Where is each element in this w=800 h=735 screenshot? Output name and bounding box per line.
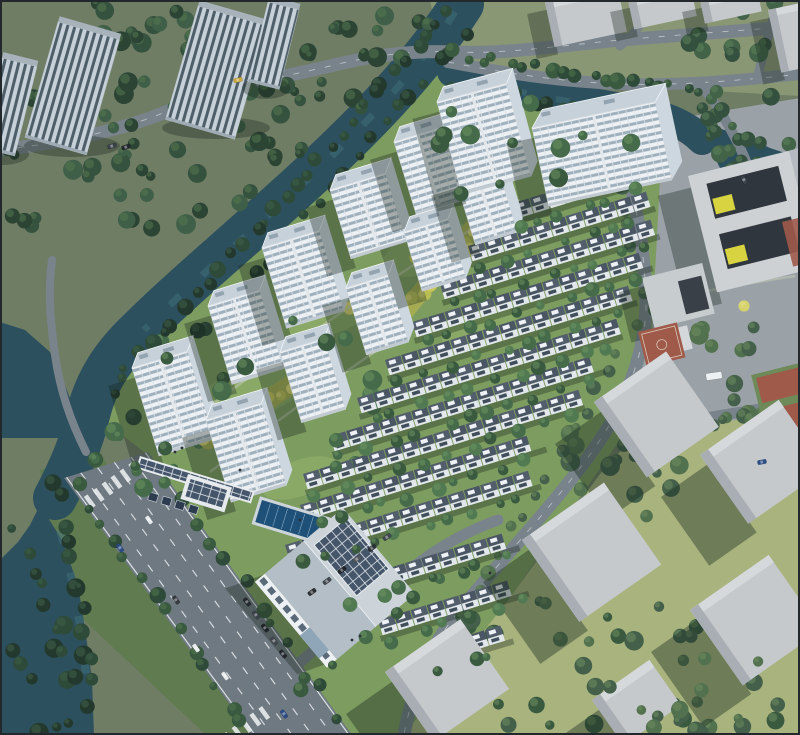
pedestrian <box>359 635 362 638</box>
masterplan-aerial-rendering <box>0 0 800 735</box>
pedestrian <box>489 572 492 575</box>
pedestrian <box>181 447 184 450</box>
rendering-viewport <box>0 0 800 735</box>
pedestrian <box>239 469 242 472</box>
pedestrian <box>174 451 177 454</box>
yellow-tree <box>738 300 749 311</box>
pedestrian <box>299 519 302 522</box>
pedestrian <box>351 639 354 642</box>
